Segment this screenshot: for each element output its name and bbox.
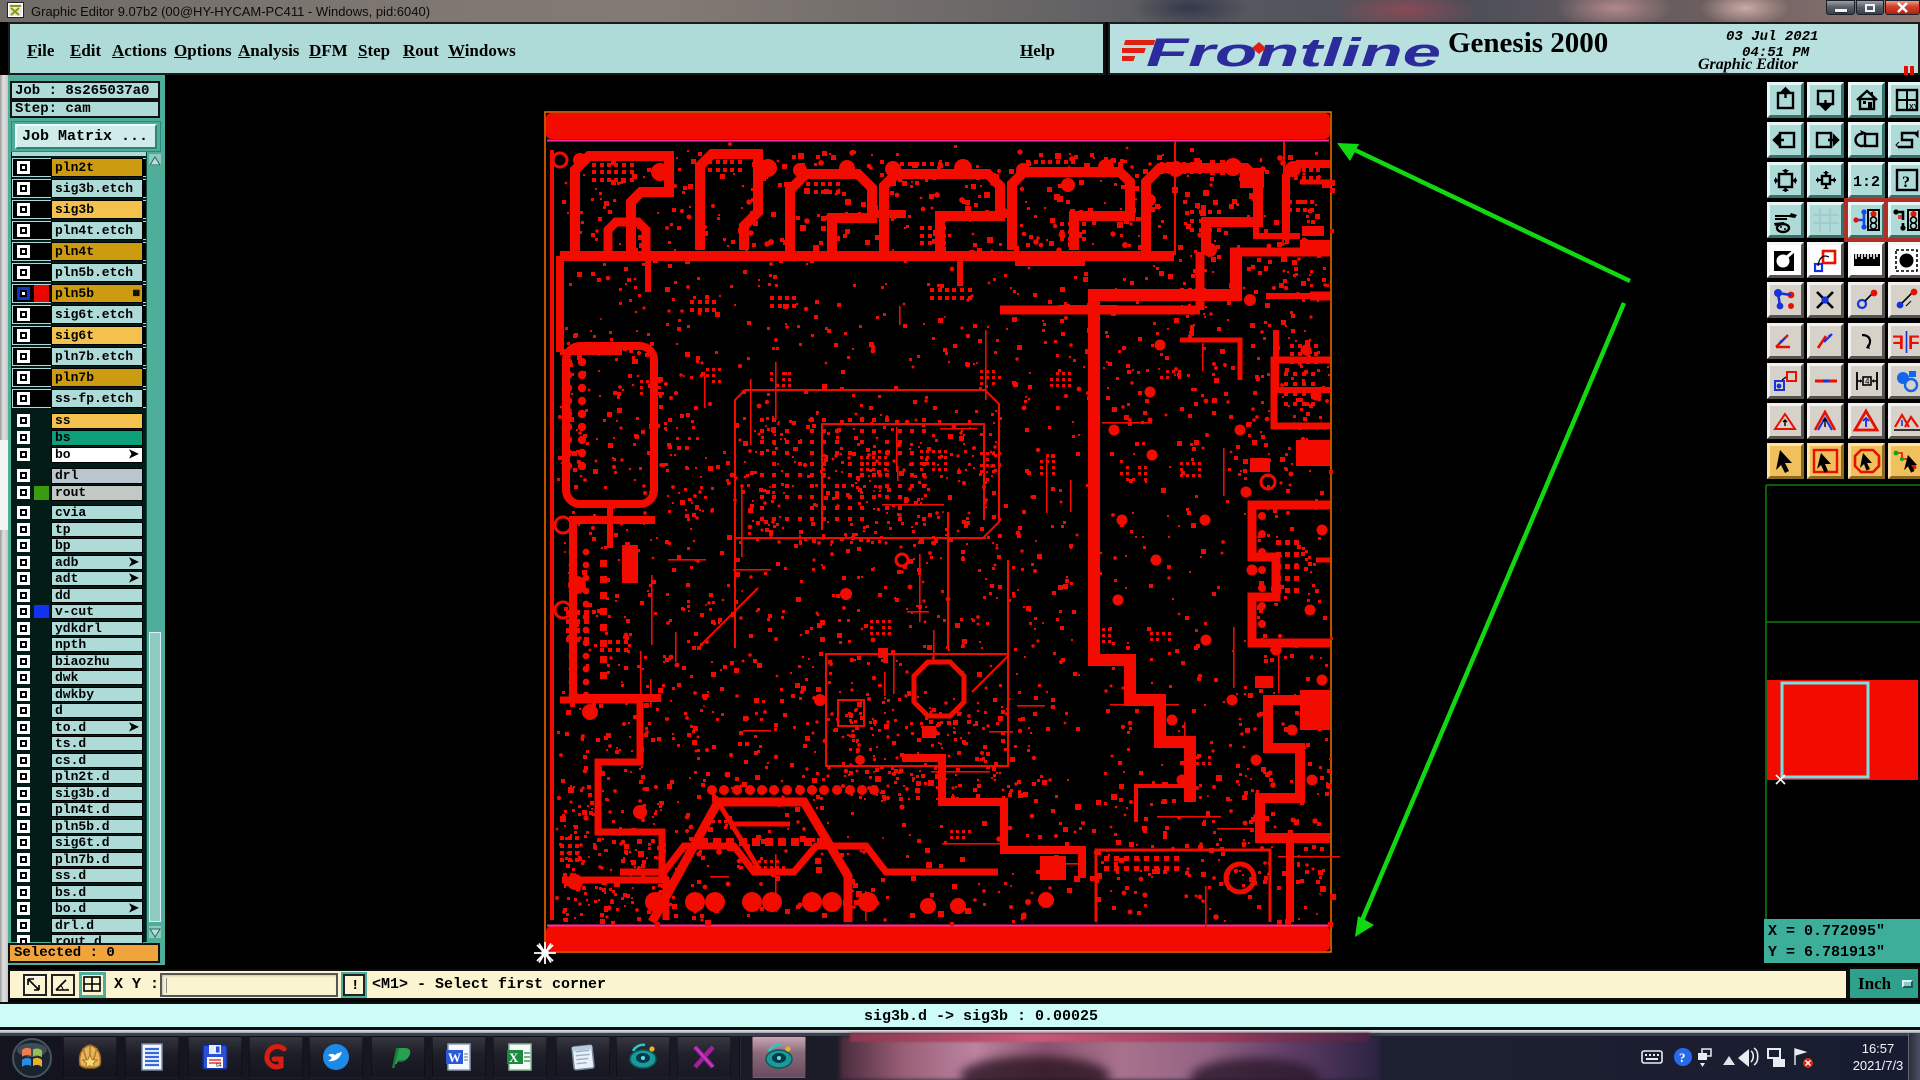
svg-text:Frontline: Frontline bbox=[1146, 32, 1441, 74]
svg-text:X: X bbox=[509, 1050, 519, 1065]
svg-text:F: F bbox=[1892, 333, 1904, 354]
svg-text:1:2: 1:2 bbox=[1853, 174, 1880, 191]
svg-text:W: W bbox=[448, 1050, 461, 1065]
svg-text:XY: XY bbox=[1909, 104, 1919, 111]
svg-text:?: ? bbox=[1902, 174, 1910, 191]
svg-text:?: ? bbox=[1679, 1050, 1686, 1065]
svg-text:64: 64 bbox=[216, 1063, 222, 1069]
svg-text:4: 4 bbox=[1865, 377, 1870, 386]
svg-text:F: F bbox=[1908, 333, 1920, 354]
